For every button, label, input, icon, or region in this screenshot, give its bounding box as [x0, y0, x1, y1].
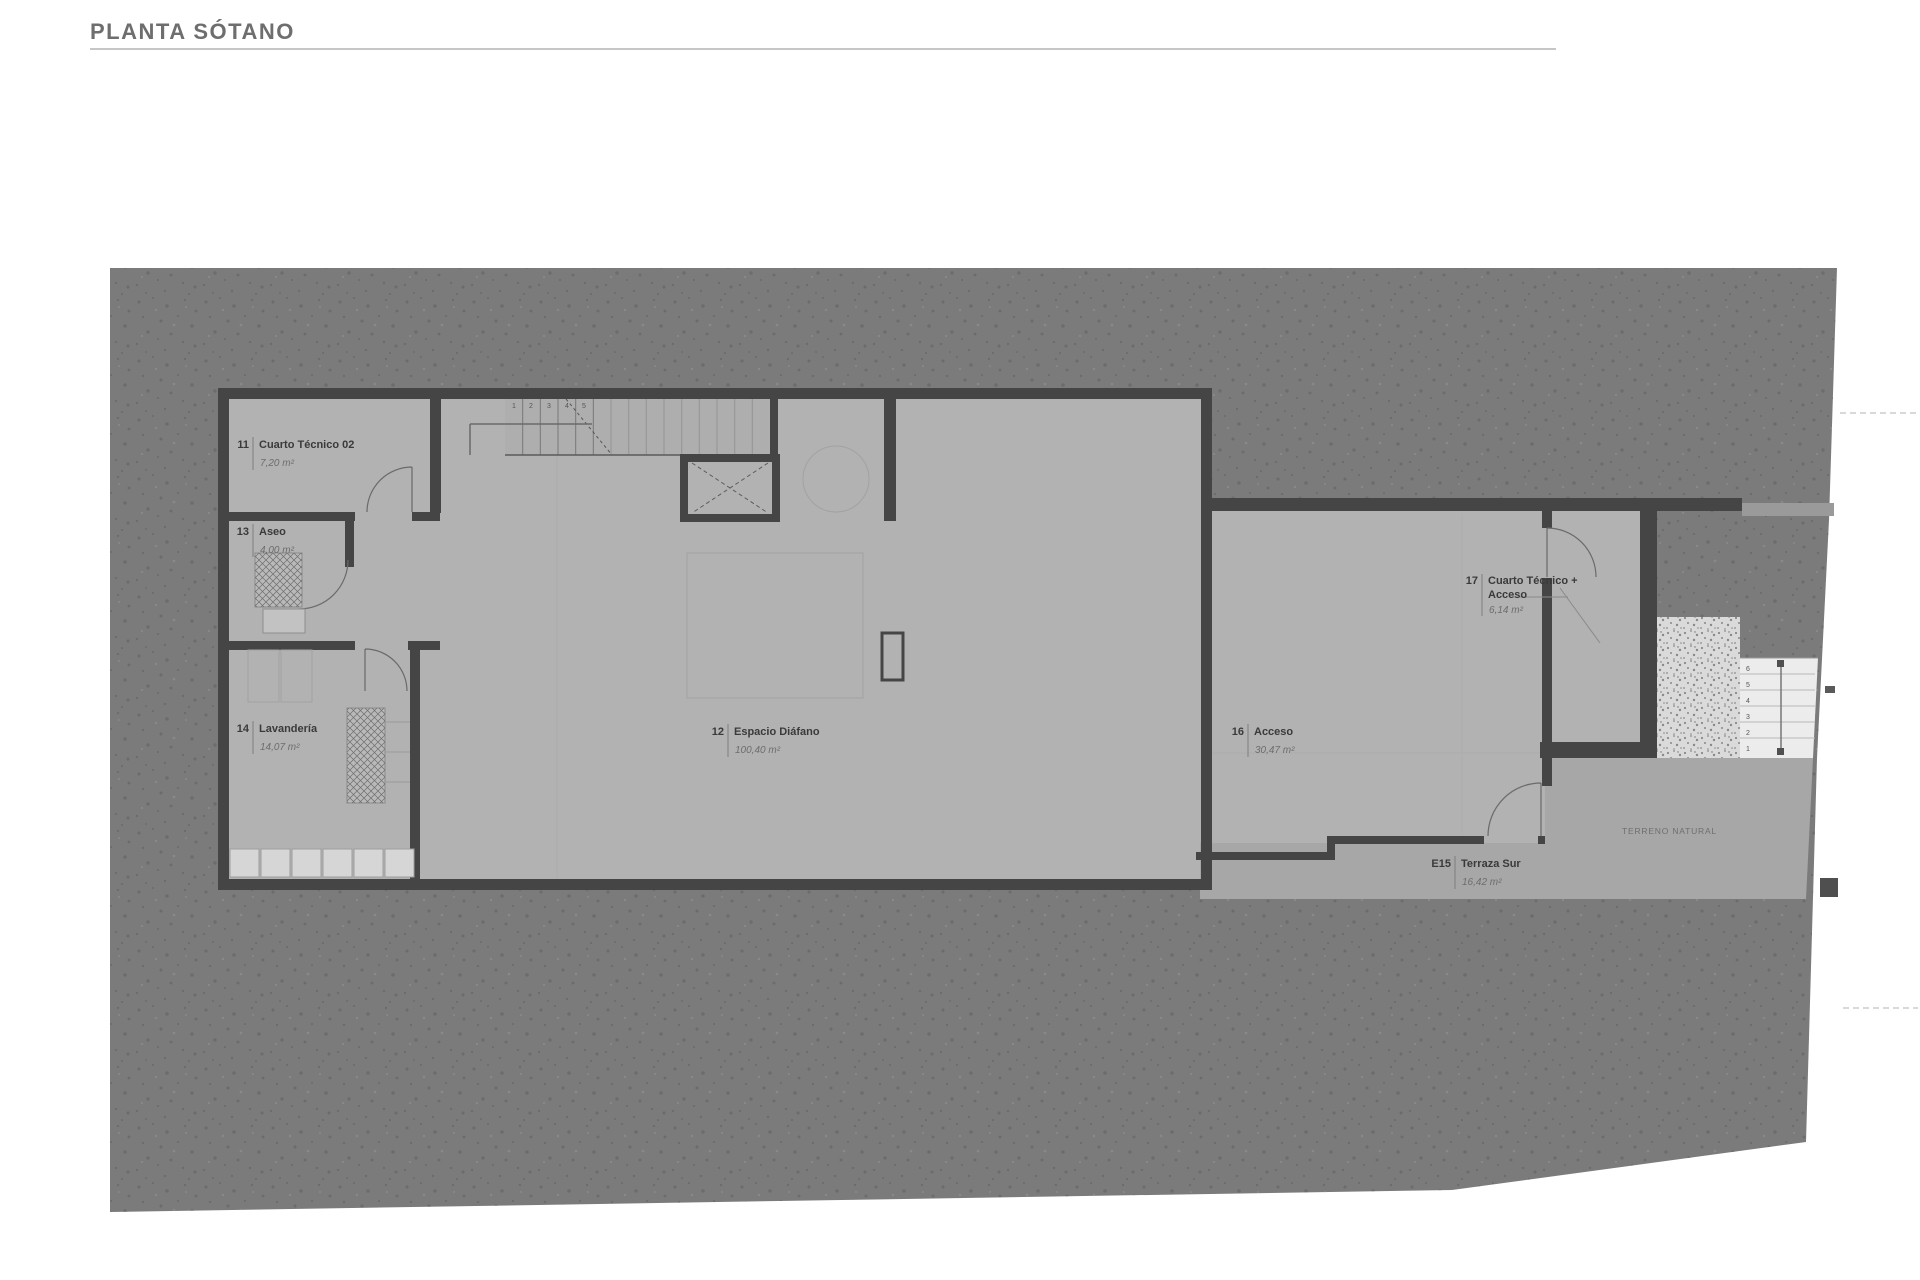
terrain-label: TERRENO NATURAL — [1622, 826, 1717, 836]
terrace-sur-strip — [1200, 843, 1545, 899]
svg-text:Espacio Diáfano: Espacio Diáfano — [734, 726, 820, 738]
wall-segment — [1542, 758, 1552, 786]
svg-text:3: 3 — [547, 403, 551, 410]
svg-text:Lavandería: Lavandería — [259, 723, 318, 735]
washbasin — [263, 609, 305, 633]
svg-text:3: 3 — [1746, 714, 1750, 721]
svg-text:5: 5 — [1746, 682, 1750, 689]
svg-text:6: 6 — [1746, 666, 1750, 673]
wall-segment — [1327, 836, 1335, 860]
elevator-shaft — [684, 458, 776, 518]
svg-text:14: 14 — [237, 723, 250, 735]
svg-text:E15: E15 — [1431, 858, 1451, 870]
wall-segment — [430, 399, 441, 513]
svg-text:16: 16 — [1232, 726, 1244, 738]
wall-segment — [345, 521, 354, 567]
svg-text:2: 2 — [529, 403, 533, 410]
structural-column — [882, 633, 903, 680]
svg-text:2: 2 — [1746, 730, 1750, 737]
svg-text:17: 17 — [1466, 575, 1478, 587]
wall-segment — [218, 388, 229, 890]
svg-text:4: 4 — [1746, 698, 1750, 705]
wall-segment — [229, 641, 355, 650]
sheet-header: PLANTA SÓTANO — [90, 19, 1556, 49]
svg-text:1: 1 — [1746, 746, 1750, 753]
svg-text:4,00 m²: 4,00 m² — [260, 545, 295, 556]
svg-text:Cuarto Técnico +: Cuarto Técnico + — [1488, 575, 1578, 587]
svg-text:14,07 m²: 14,07 m² — [260, 742, 300, 753]
wall-segment — [1542, 578, 1552, 742]
boundary-dash-lines — [1840, 413, 1918, 1008]
svg-text:Acceso: Acceso — [1254, 726, 1293, 738]
svg-text:7,20 m²: 7,20 m² — [260, 458, 295, 469]
interior-stair: 1 2 3 4 5 — [470, 399, 770, 455]
svg-text:Cuarto Técnico 02: Cuarto Técnico 02 — [259, 439, 354, 451]
svg-text:16,42 m²: 16,42 m² — [1462, 877, 1502, 888]
exterior-stair-landing — [1740, 658, 1818, 758]
wall-segment — [1327, 836, 1484, 844]
svg-text:4: 4 — [565, 403, 569, 410]
floor-plan-drawing: PLANTA SÓTANO — [0, 0, 1920, 1280]
retaining-wall-light — [1742, 503, 1834, 516]
wall-segment — [1201, 388, 1212, 890]
wall-segment — [218, 879, 1212, 890]
svg-text:11: 11 — [237, 439, 249, 451]
wall-segment — [412, 512, 440, 521]
svg-text:12: 12 — [712, 726, 724, 738]
wall-segment — [218, 388, 1212, 399]
wall-segment — [1196, 852, 1334, 860]
wall-segment — [1212, 498, 1742, 511]
wall-segment — [1540, 742, 1657, 758]
svg-text:13: 13 — [237, 526, 249, 538]
wall-segment — [770, 399, 778, 456]
wall-segment — [408, 641, 440, 650]
wall-segment — [884, 399, 896, 521]
svg-text:1: 1 — [512, 403, 516, 410]
wall-segment — [1538, 836, 1545, 844]
svg-text:100,40 m²: 100,40 m² — [735, 745, 781, 756]
svg-text:30,47 m²: 30,47 m² — [1255, 745, 1295, 756]
svg-text:6,14 m²: 6,14 m² — [1489, 605, 1524, 616]
wall-segment — [410, 650, 420, 879]
svg-text:5: 5 — [582, 403, 586, 410]
svg-text:Acceso: Acceso — [1488, 589, 1527, 601]
wall-segment — [1542, 511, 1552, 528]
svg-text:Aseo: Aseo — [259, 526, 286, 538]
gravel-patch — [1657, 617, 1740, 758]
wall-segment — [1640, 511, 1657, 758]
svg-text:Terraza Sur: Terraza Sur — [1461, 858, 1521, 870]
wall-segment — [229, 512, 355, 521]
site-markers — [1820, 413, 1918, 1008]
page-title: PLANTA SÓTANO — [90, 19, 295, 44]
